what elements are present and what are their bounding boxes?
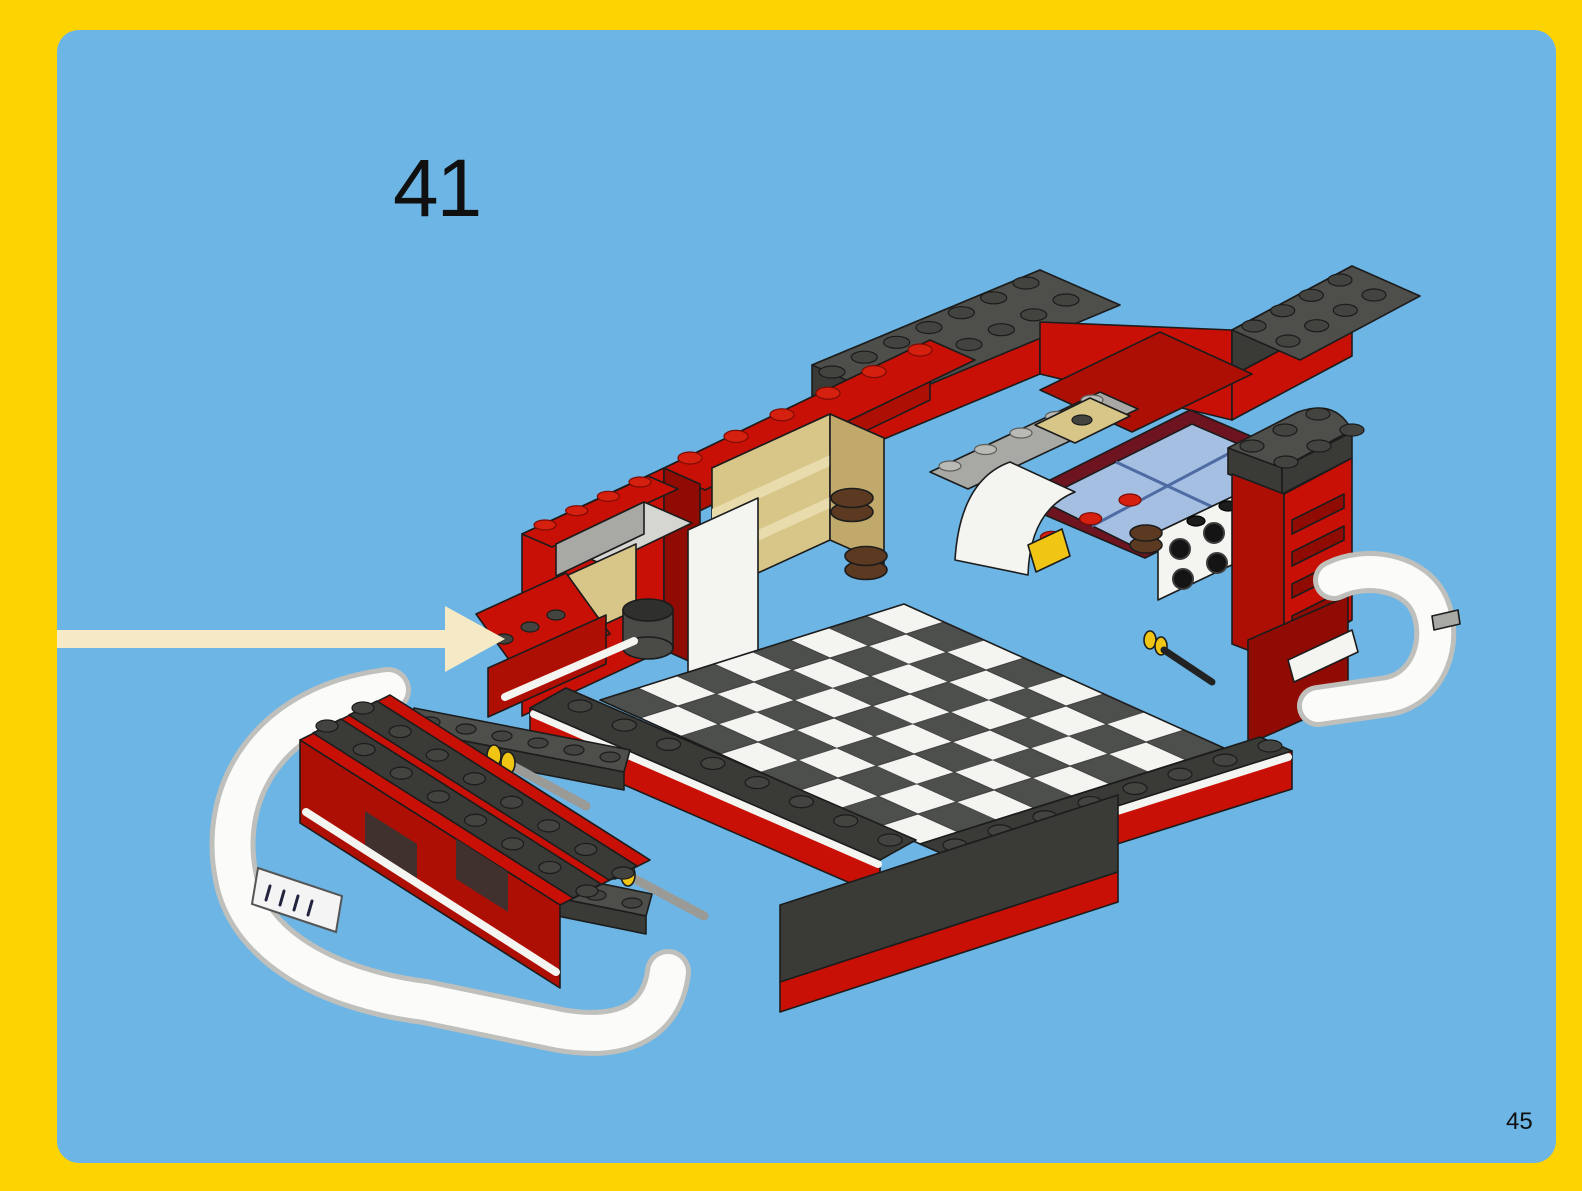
callout-arrow-icon xyxy=(57,606,505,672)
instruction-page: 41 45 xyxy=(0,0,1582,1191)
step-number: 41 xyxy=(393,148,480,230)
lego-model xyxy=(233,266,1460,1033)
rear-right-wall xyxy=(1232,266,1420,420)
right-axle-bits xyxy=(1144,631,1212,682)
page-number: 45 xyxy=(1506,1110,1533,1134)
step-illustration xyxy=(0,0,1582,1191)
stud xyxy=(1072,415,1092,425)
trash-bin xyxy=(623,599,673,659)
